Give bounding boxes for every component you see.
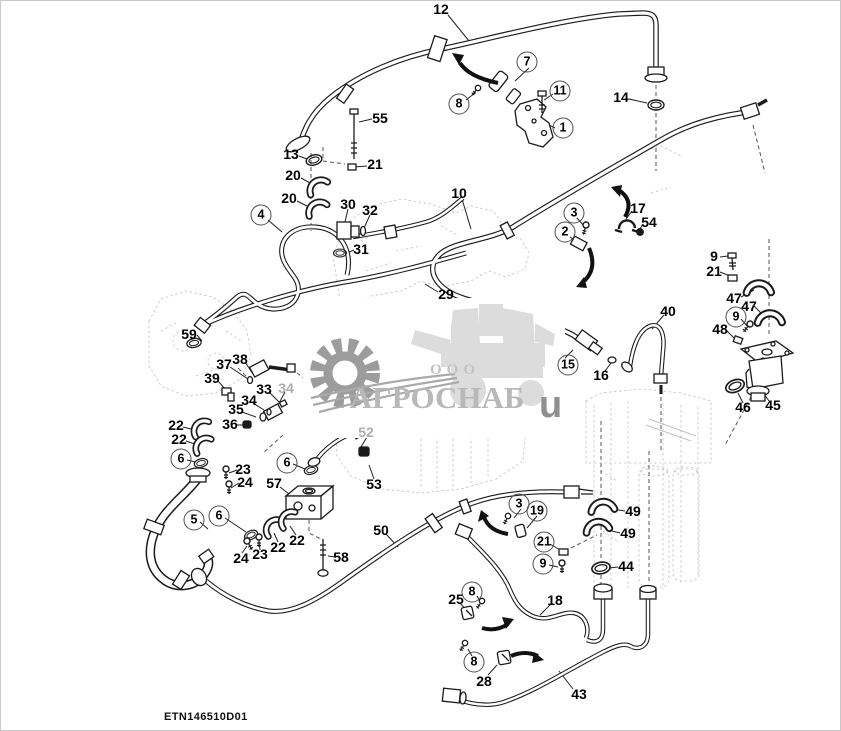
part-label-29[interactable]: 29	[438, 287, 454, 301]
part-label-5[interactable]: 5	[184, 510, 205, 531]
part-label-11[interactable]: 11	[550, 81, 571, 102]
part-label-48[interactable]: 48	[712, 322, 728, 336]
part-label-10[interactable]: 10	[451, 186, 467, 200]
part-label-9[interactable]: 9	[726, 307, 747, 328]
part-label-21[interactable]: 21	[706, 264, 722, 278]
part-label-21[interactable]: 21	[367, 157, 383, 171]
part-label-30[interactable]: 30	[340, 197, 356, 211]
part-label-32[interactable]: 32	[362, 203, 378, 217]
part-label-45[interactable]: 45	[765, 398, 781, 412]
part-label-21[interactable]: 21	[534, 532, 555, 553]
part-label-49[interactable]: 49	[620, 526, 636, 540]
part-label-14[interactable]: 14	[613, 90, 629, 104]
part-label-6[interactable]: 6	[209, 506, 230, 527]
part-label-6[interactable]: 6	[171, 449, 192, 470]
part-label-34[interactable]: 34	[278, 381, 294, 395]
part-label-8[interactable]: 8	[464, 652, 485, 673]
part-label-35[interactable]: 35	[228, 402, 244, 416]
part-label-16[interactable]: 16	[593, 368, 609, 382]
part-label-22[interactable]: 22	[168, 418, 184, 432]
part-label-3[interactable]: 3	[564, 203, 585, 224]
part-label-15[interactable]: 15	[558, 355, 579, 376]
part-label-46[interactable]: 46	[735, 400, 751, 414]
part-label-58[interactable]: 58	[333, 550, 349, 564]
part-label-40[interactable]: 40	[660, 304, 676, 318]
part-label-28[interactable]: 28	[476, 674, 492, 688]
part-label-22[interactable]: 22	[171, 432, 187, 446]
parts-diagram-page: ООО АГРОСНАБ u 1278111145513212020430323…	[0, 0, 841, 731]
part-label-44[interactable]: 44	[618, 559, 634, 573]
part-label-31[interactable]: 31	[353, 242, 369, 256]
part-label-38[interactable]: 38	[232, 352, 248, 366]
part-label-39[interactable]: 39	[204, 371, 220, 385]
part-label-54[interactable]: 54	[641, 215, 657, 229]
part-label-6[interactable]: 6	[277, 453, 298, 474]
part-label-50[interactable]: 50	[373, 523, 389, 537]
part-label-55[interactable]: 55	[372, 111, 388, 125]
part-label-20[interactable]: 20	[285, 168, 301, 182]
part-label-22[interactable]: 22	[289, 533, 305, 547]
part-label-20[interactable]: 20	[281, 191, 297, 205]
part-label-19[interactable]: 19	[527, 501, 548, 522]
part-label-37[interactable]: 37	[216, 357, 232, 371]
part-label-9[interactable]: 9	[533, 554, 554, 575]
watermark-company-prefix: ООО	[415, 362, 495, 379]
part-label-18[interactable]: 18	[547, 593, 563, 607]
part-label-13[interactable]: 13	[283, 147, 299, 161]
part-label-12[interactable]: 12	[433, 2, 449, 16]
watermark-company-name: АГРОСНАБ	[339, 380, 535, 416]
part-label-52[interactable]: 52	[358, 425, 374, 439]
part-label-1[interactable]: 1	[553, 118, 574, 139]
part-label-49[interactable]: 49	[625, 504, 641, 518]
part-label-17[interactable]: 17	[630, 201, 646, 215]
part-label-24[interactable]: 24	[233, 551, 249, 565]
part-label-8[interactable]: 8	[462, 582, 483, 603]
part-label-4[interactable]: 4	[251, 205, 272, 226]
watermark: ООО АГРОСНАБ u	[303, 298, 565, 438]
part-label-22[interactable]: 22	[270, 540, 286, 554]
part-label-8[interactable]: 8	[449, 94, 470, 115]
watermark-suffix-letter: u	[539, 384, 562, 427]
part-label-59[interactable]: 59	[181, 327, 197, 341]
drawing-number: ETN146510D01	[164, 711, 248, 723]
part-label-53[interactable]: 53	[366, 477, 382, 491]
part-label-47[interactable]: 47	[726, 291, 742, 305]
part-label-43[interactable]: 43	[571, 687, 587, 701]
part-label-9[interactable]: 9	[710, 249, 718, 263]
part-label-7[interactable]: 7	[517, 52, 538, 73]
part-label-57[interactable]: 57	[266, 476, 282, 490]
part-label-33[interactable]: 33	[256, 382, 272, 396]
part-label-2[interactable]: 2	[555, 222, 576, 243]
part-label-23[interactable]: 23	[252, 547, 268, 561]
part-label-24[interactable]: 24	[237, 475, 253, 489]
part-label-36[interactable]: 36	[222, 417, 238, 431]
